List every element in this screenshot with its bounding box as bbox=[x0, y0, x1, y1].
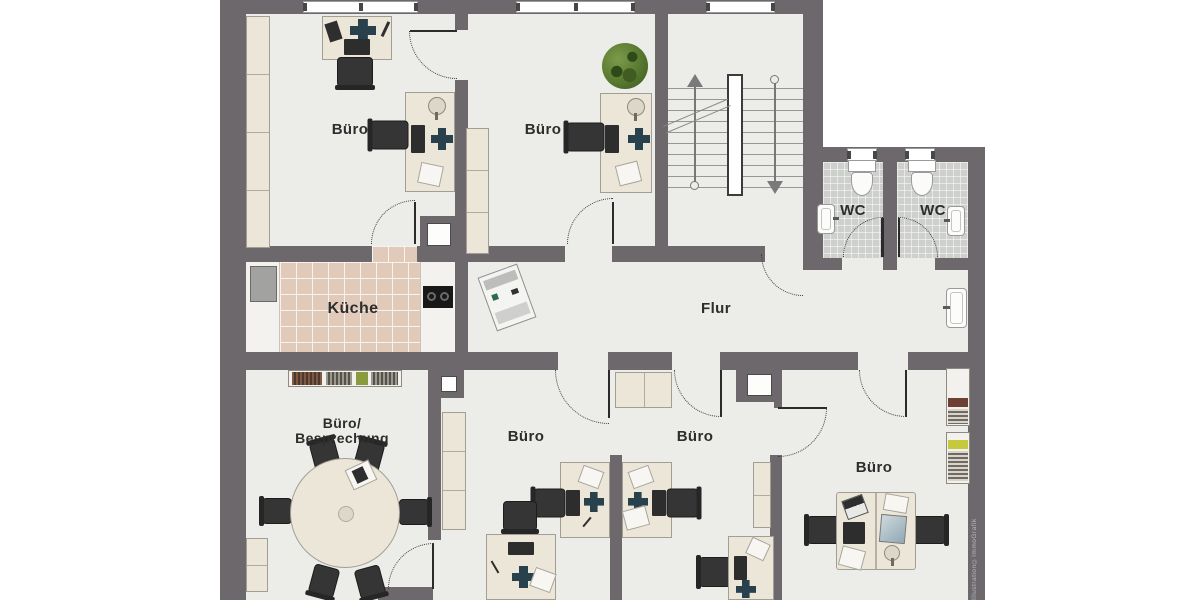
cabinet bbox=[466, 128, 489, 254]
cabinet bbox=[442, 412, 466, 530]
monitor bbox=[652, 490, 666, 516]
room-label-besprechung: Büro/ Besprechung bbox=[292, 416, 392, 446]
books bbox=[948, 440, 968, 449]
monitor bbox=[605, 125, 619, 153]
wall-divider-office1-2-stub bbox=[455, 14, 468, 30]
room-label-wc-left: WC bbox=[836, 202, 870, 219]
desk-chair-symbol bbox=[584, 492, 604, 512]
books bbox=[948, 409, 968, 424]
room-label-buero-bottom-left: Büro bbox=[494, 428, 558, 445]
books bbox=[292, 372, 322, 385]
documents bbox=[417, 162, 444, 187]
stair-arrow-up bbox=[687, 74, 703, 87]
desk-chair-symbol bbox=[628, 128, 650, 150]
copier-button bbox=[491, 293, 499, 301]
wall-wc-right-bottom bbox=[935, 258, 968, 270]
books bbox=[948, 451, 968, 481]
wall-wc-top bbox=[820, 147, 985, 162]
window-mullion bbox=[359, 3, 363, 11]
desk-chair-symbol bbox=[736, 580, 756, 598]
desk-lamp bbox=[627, 98, 645, 116]
watermark: Illustration©ImmoGrafik bbox=[971, 488, 978, 600]
floor-plan: Büro Büro Küche Flur WC WC Büro/ Besprec… bbox=[0, 0, 1200, 600]
books bbox=[371, 372, 398, 385]
toilet-tank bbox=[908, 160, 936, 172]
stair-guide-up bbox=[694, 82, 696, 186]
copier-button bbox=[511, 288, 519, 295]
office-chair bbox=[912, 516, 946, 544]
stair-stringer bbox=[727, 74, 743, 196]
wall-stairs-bottom bbox=[612, 246, 765, 262]
wall-corridor-bottom-b bbox=[608, 352, 672, 370]
monitor bbox=[411, 125, 425, 153]
wall-left bbox=[220, 0, 246, 600]
wall-wc-left-bottom bbox=[823, 258, 842, 270]
office-chair bbox=[699, 557, 731, 587]
desk-lamp bbox=[884, 545, 900, 561]
window-mullion bbox=[574, 3, 578, 11]
plant bbox=[602, 43, 648, 89]
blue-document bbox=[879, 514, 907, 544]
fridge bbox=[250, 266, 277, 302]
faucet bbox=[943, 306, 950, 309]
meeting-chair bbox=[399, 499, 429, 525]
books bbox=[948, 398, 968, 407]
chimney-shaft bbox=[427, 223, 451, 246]
table-center bbox=[338, 506, 354, 522]
wall-office2-stairs bbox=[655, 14, 668, 262]
monitor bbox=[566, 490, 580, 516]
wall-mid-offices-divider bbox=[610, 455, 622, 600]
toilet-tank bbox=[848, 160, 876, 172]
wall-kitchen-flur bbox=[455, 262, 468, 352]
room-label-flur: Flur bbox=[688, 300, 744, 317]
desk-divider bbox=[875, 493, 877, 569]
desk-lamp bbox=[428, 97, 446, 115]
monitor bbox=[843, 522, 865, 544]
sideboard bbox=[615, 372, 672, 408]
cabinet bbox=[246, 538, 268, 592]
stove-burner bbox=[440, 292, 449, 301]
stair-guide-down bbox=[774, 80, 776, 186]
office-chair bbox=[534, 489, 566, 518]
room-label-buero-bottom-right: Büro bbox=[842, 459, 906, 476]
window bbox=[706, 1, 775, 13]
desk-chair-symbol bbox=[431, 128, 453, 150]
keyboard bbox=[344, 39, 370, 55]
office-chair bbox=[503, 501, 537, 531]
chimney-shaft bbox=[747, 374, 772, 396]
room-label-kueche: Küche bbox=[318, 300, 388, 318]
monitor bbox=[508, 542, 534, 555]
room-label-buero-top-left: Büro bbox=[318, 121, 382, 138]
books bbox=[356, 372, 368, 385]
stair-guide-start bbox=[770, 75, 779, 84]
faucet bbox=[944, 219, 950, 222]
monitor bbox=[734, 556, 747, 580]
kitchen-tile-vestibule bbox=[372, 246, 417, 262]
cabinet bbox=[753, 462, 771, 528]
office-chair bbox=[337, 57, 373, 87]
books bbox=[326, 372, 352, 385]
copier-panel bbox=[483, 270, 518, 291]
meeting-chair bbox=[262, 498, 292, 524]
room-label-buero-top-middle: Büro bbox=[511, 121, 575, 138]
room-label-wc-right: WC bbox=[916, 202, 950, 219]
room-label-line: Besprechung bbox=[292, 431, 392, 446]
chimney-shaft bbox=[441, 376, 457, 392]
stair-guide-start bbox=[690, 181, 699, 190]
room-label-line: Büro/ bbox=[292, 416, 392, 431]
copier-tray bbox=[495, 302, 531, 325]
stair-arrow-down bbox=[767, 181, 783, 194]
room-label-buero-bottom-middle: Büro bbox=[663, 428, 727, 445]
stove-burner bbox=[427, 292, 436, 301]
office-chair bbox=[667, 489, 699, 518]
wardrobe bbox=[246, 16, 270, 248]
wall-corridor-bottom-a bbox=[246, 352, 558, 370]
wall-wc-divider bbox=[883, 162, 897, 270]
wall-office1-bottom bbox=[246, 246, 372, 262]
